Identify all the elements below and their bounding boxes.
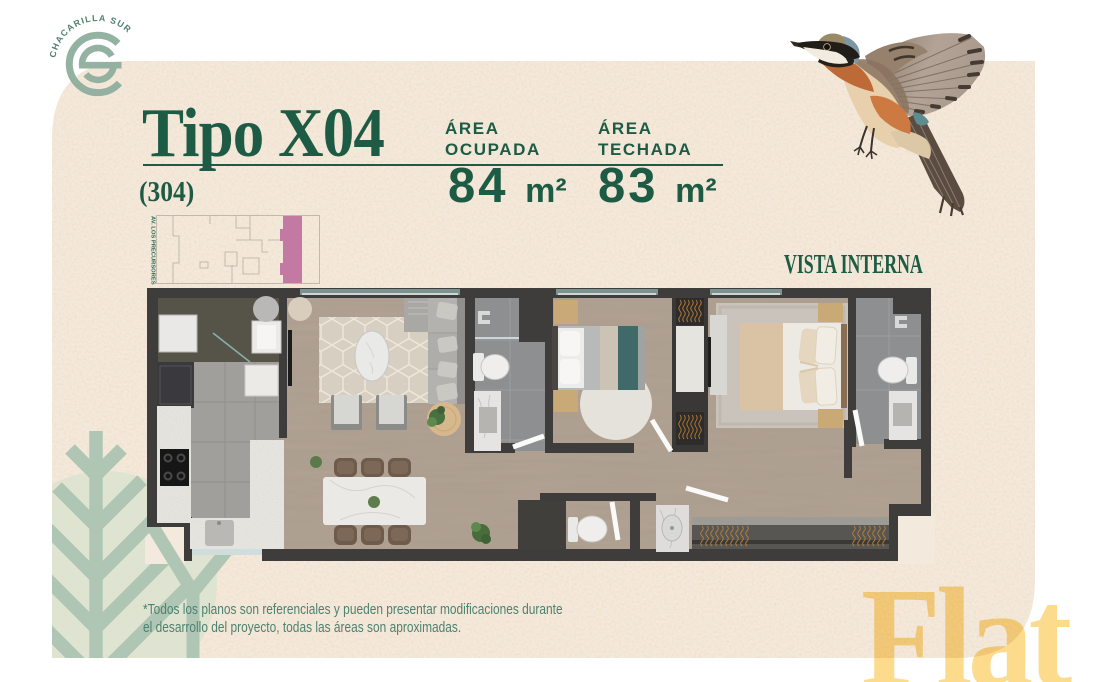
svg-text:AV. LOS PRECURSORES: AV. LOS PRECURSORES [150,216,156,285]
